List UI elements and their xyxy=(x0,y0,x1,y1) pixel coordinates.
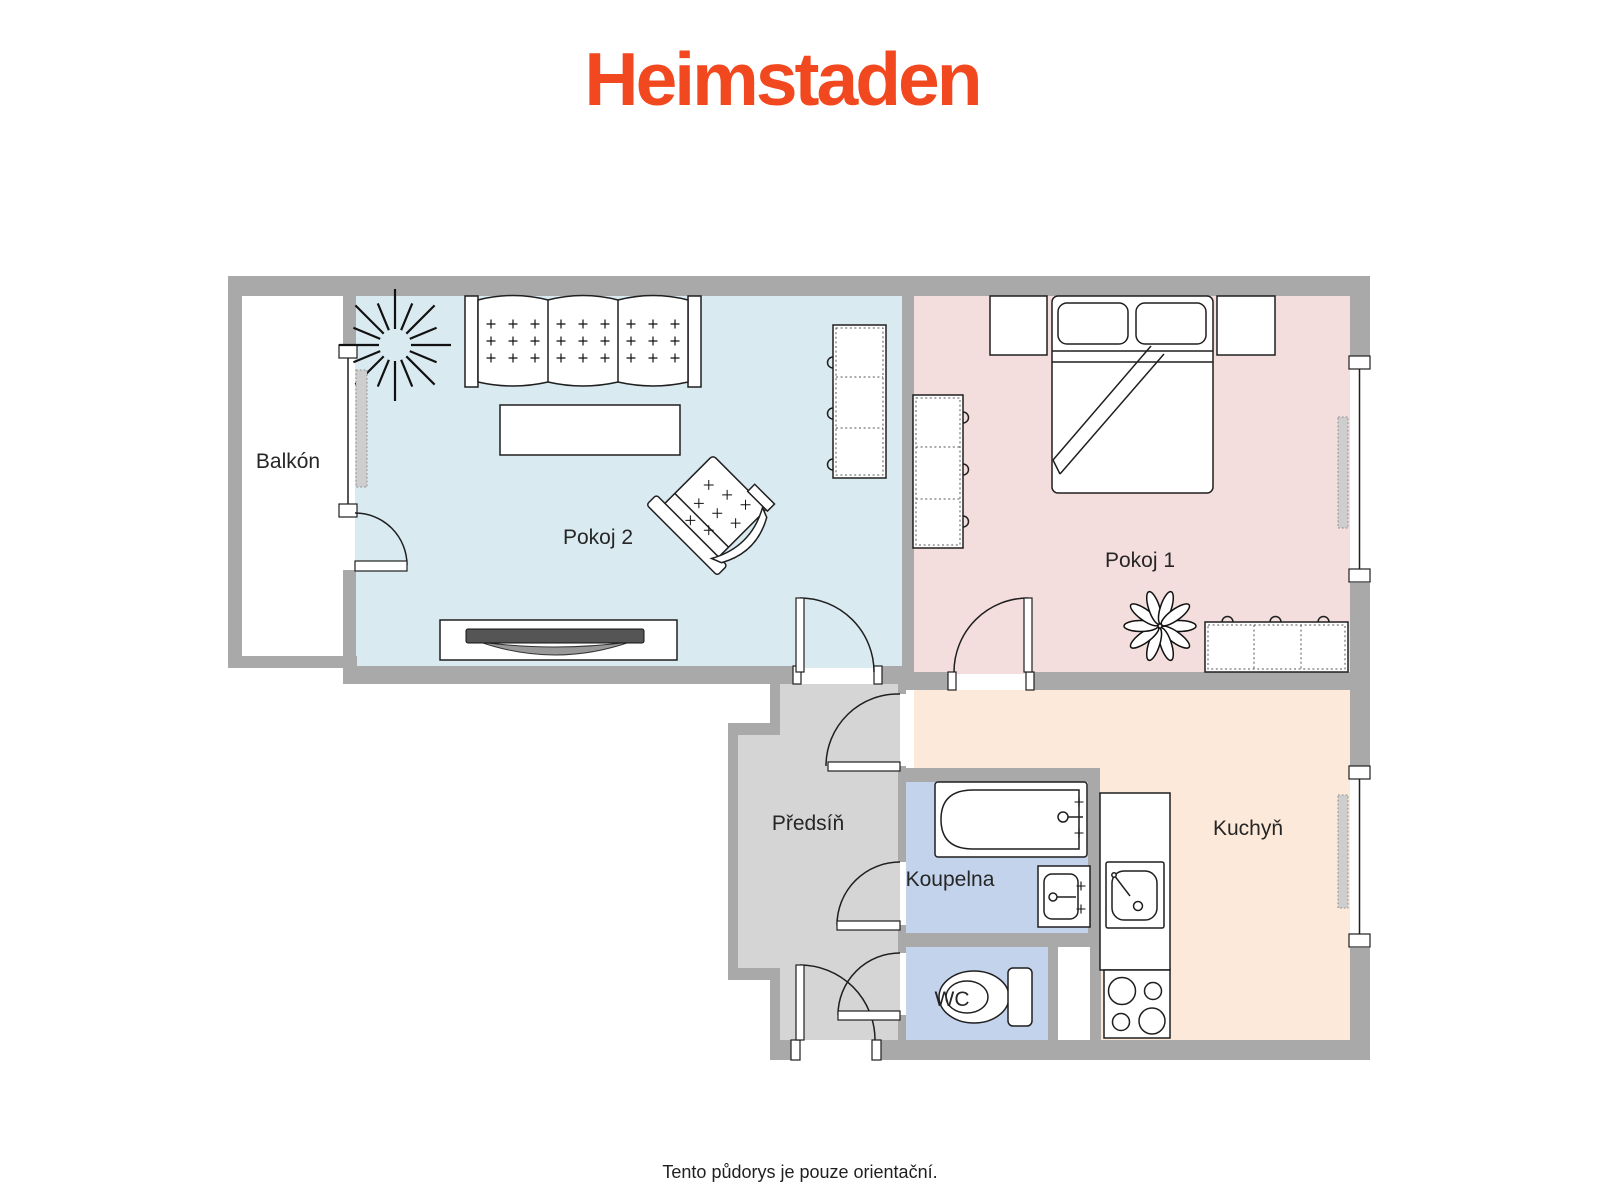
sofa xyxy=(465,296,701,388)
bathroom-sink xyxy=(1038,866,1090,927)
wardrobe xyxy=(828,325,887,478)
kitchen-sink xyxy=(1106,862,1164,928)
floorplan-drawing xyxy=(0,0,1600,1200)
room-label-wc: WC xyxy=(935,988,970,1012)
tv-stand xyxy=(440,620,677,660)
room-label-koupelna: Koupelna xyxy=(906,868,995,892)
kuchyn-window xyxy=(1349,766,1370,947)
floorplan-page: Heimstaden xyxy=(0,0,1600,1200)
nightstand xyxy=(990,296,1047,355)
radiator xyxy=(356,370,367,487)
door-leaf xyxy=(796,598,804,672)
room-label-pokoj2: Pokoj 2 xyxy=(563,526,633,550)
nightstand xyxy=(1217,296,1275,355)
pokoj1-window xyxy=(1349,356,1370,582)
wardrobe xyxy=(913,395,969,548)
bathtub xyxy=(935,782,1087,857)
door-leaf xyxy=(1024,598,1032,672)
table xyxy=(500,405,680,455)
radiator xyxy=(1338,795,1348,908)
stove xyxy=(1104,970,1170,1038)
room-label-kuchyn: Kuchyň xyxy=(1213,817,1283,841)
room-label-predsin: Předsíň xyxy=(772,812,844,836)
door-leaf xyxy=(837,921,900,930)
door-leaf xyxy=(355,561,407,571)
door-leaf xyxy=(828,762,900,771)
radiator xyxy=(1338,417,1348,528)
balcony-window xyxy=(339,345,357,517)
room-label-balkon: Balkón xyxy=(256,450,320,474)
sideboard xyxy=(1205,617,1348,673)
bed xyxy=(1052,296,1213,493)
disclaimer-text: Tento půdorys je pouze orientační. xyxy=(0,1162,1600,1183)
door-leaf xyxy=(838,1011,900,1020)
room-label-pokoj1: Pokoj 1 xyxy=(1105,549,1175,573)
door-leaf xyxy=(796,965,804,1040)
floor-predsin xyxy=(738,684,900,1040)
